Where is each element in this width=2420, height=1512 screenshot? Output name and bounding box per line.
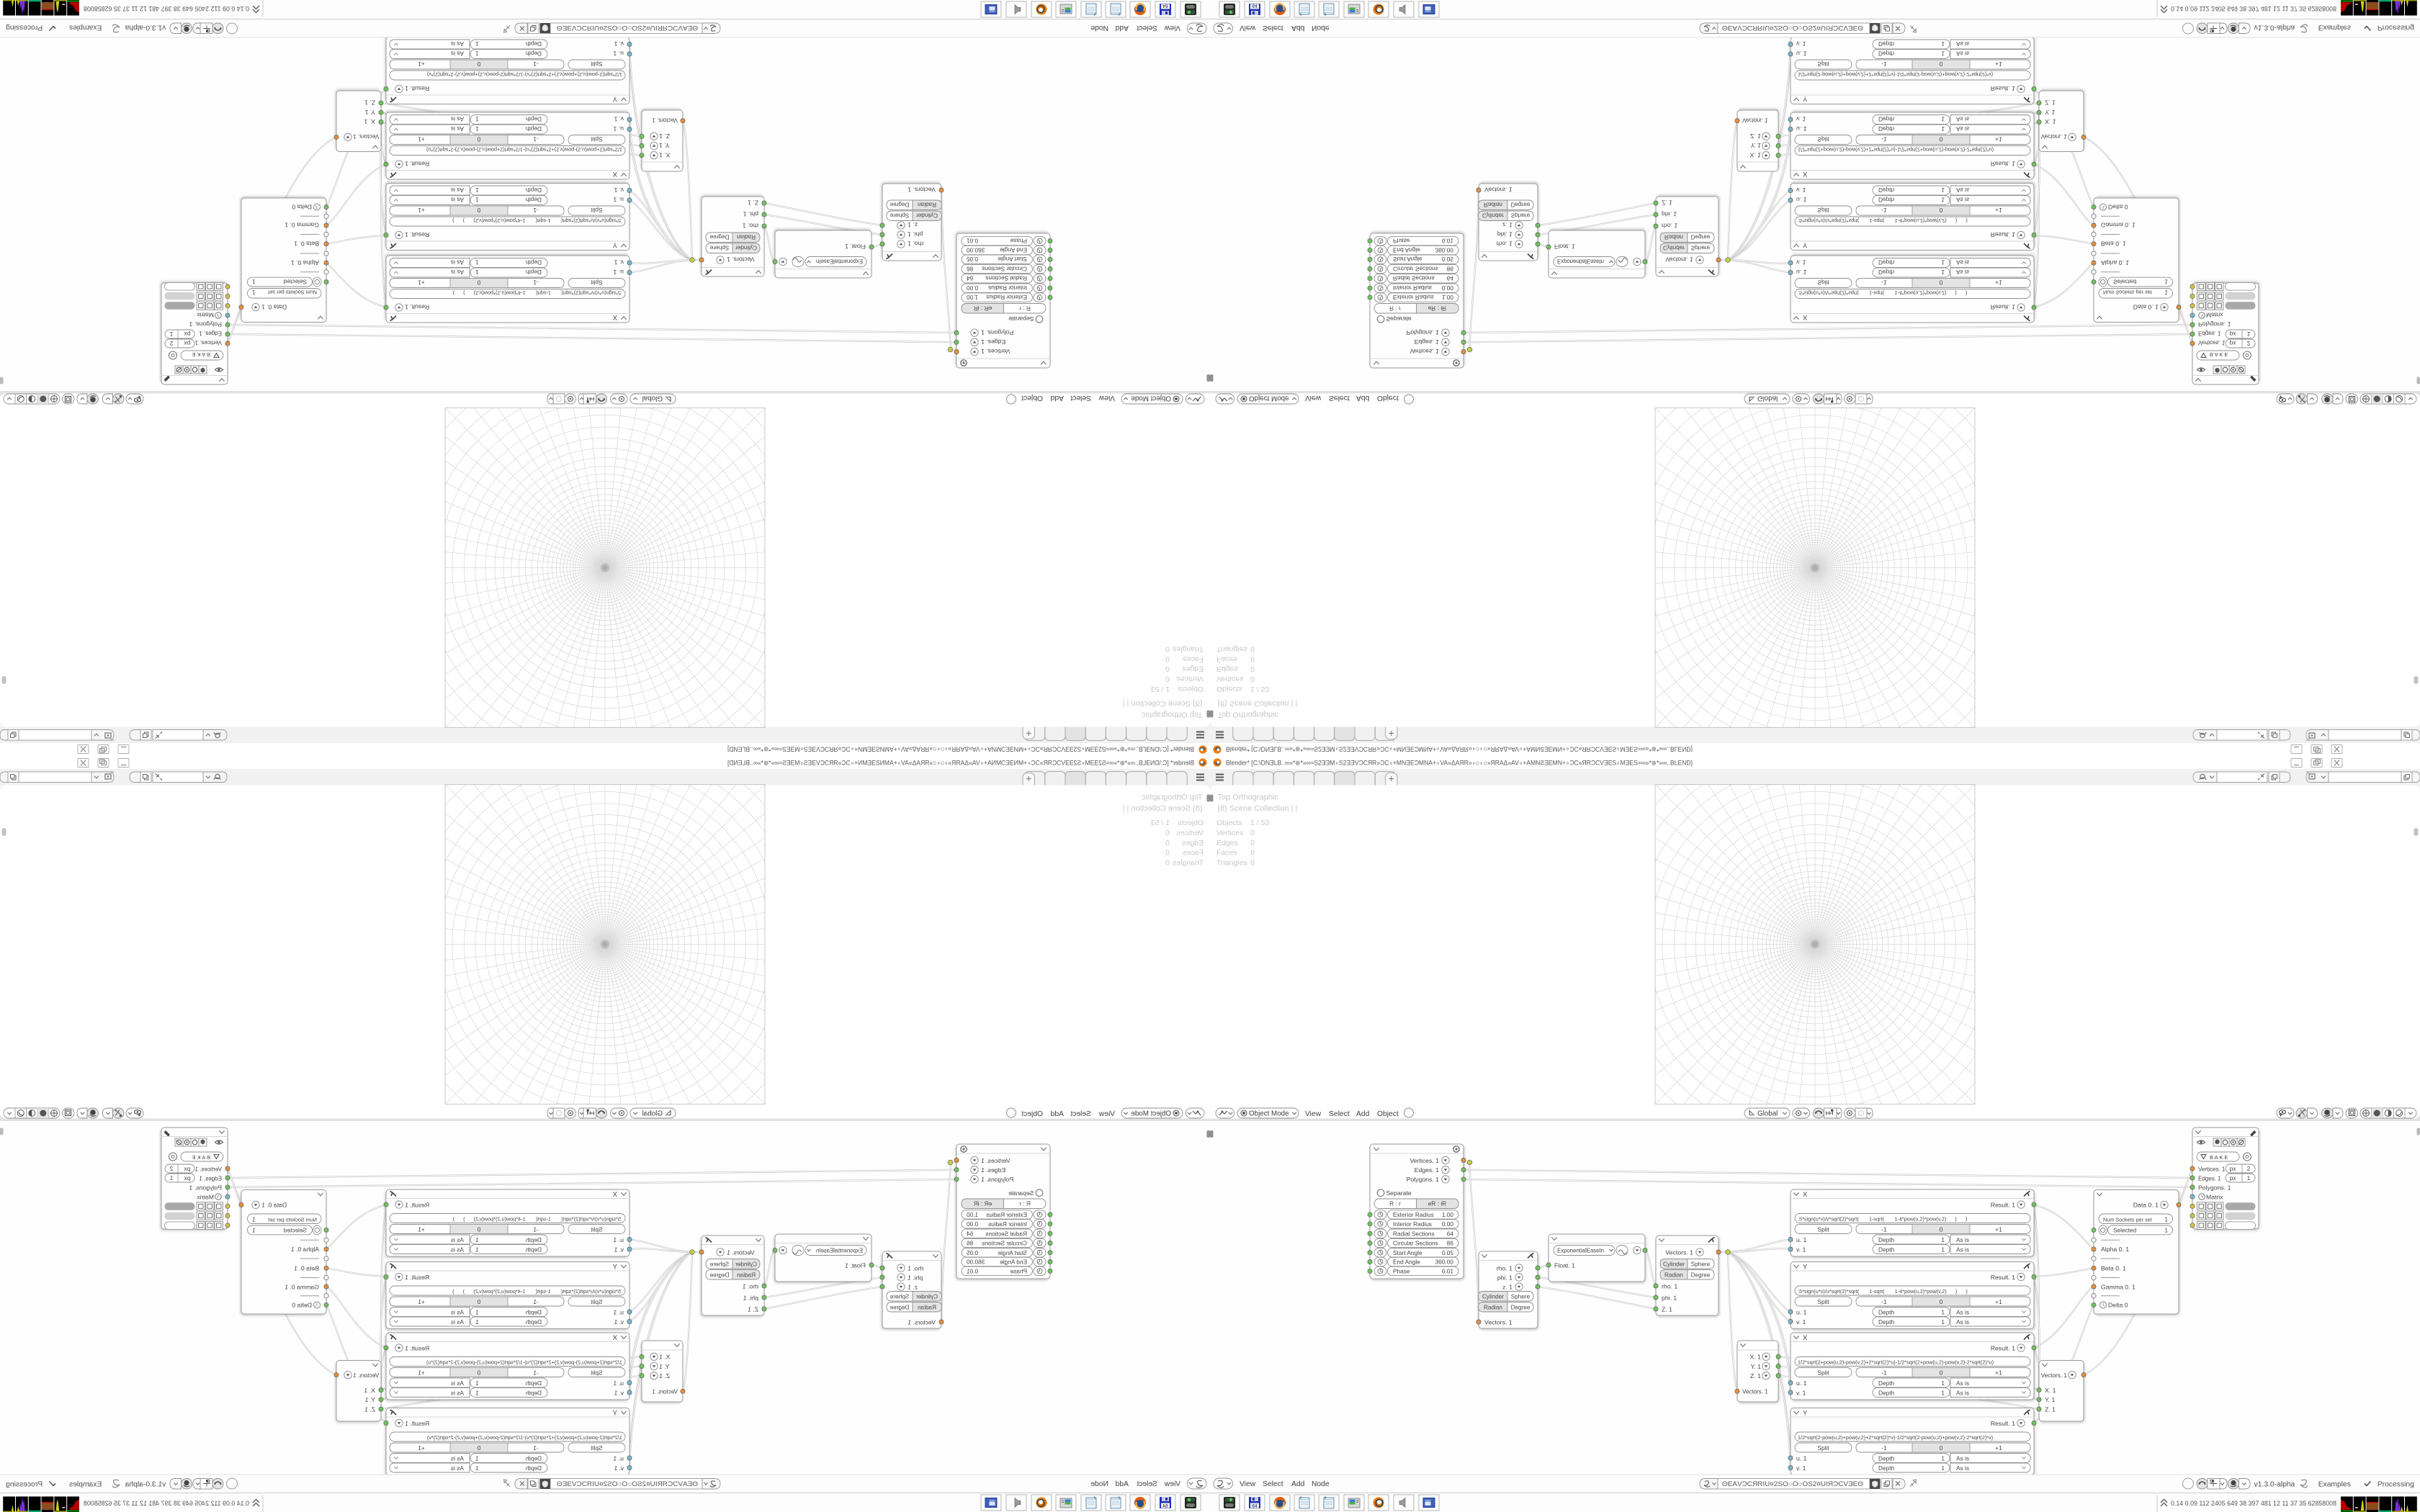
svg-text:0: 0 xyxy=(1940,1226,1943,1233)
svg-text:Z. 1: Z. 1 xyxy=(1662,1305,1672,1313)
svg-text:Split: Split xyxy=(1817,1226,1829,1233)
svg-text:64: 64 xyxy=(1447,1230,1454,1238)
svg-text:-1: -1 xyxy=(1881,1369,1887,1377)
svg-text:ExponentialEaseIn: ExponentialEaseIn xyxy=(1557,1248,1604,1254)
svg-text:Object Mode: Object Mode xyxy=(1249,1110,1289,1118)
svg-text:Radian: Radian xyxy=(1664,1272,1683,1278)
svg-text:Polygons. 1: Polygons. 1 xyxy=(2198,1184,2231,1191)
svg-text:rho. 1: rho. 1 xyxy=(1662,1282,1677,1290)
svg-text:Faces: Faces xyxy=(1216,849,1237,858)
svg-text:Result. 1: Result. 1 xyxy=(1991,1201,2015,1208)
svg-text:+1: +1 xyxy=(1995,1369,2002,1377)
svg-text:z. 1: z. 1 xyxy=(1502,1283,1512,1290)
svg-text:Z. 1: Z. 1 xyxy=(1750,1372,1761,1380)
svg-text:1: 1 xyxy=(1941,1236,1945,1243)
svg-text:v. 1: v. 1 xyxy=(1796,1318,1806,1326)
svg-text:Examples: Examples xyxy=(2318,1481,2351,1489)
svg-text:Z. 1: Z. 1 xyxy=(2045,1405,2056,1413)
svg-text:Select: Select xyxy=(1329,1110,1350,1118)
svg-text:Gamma 0. 1: Gamma 0. 1 xyxy=(2101,1283,2136,1290)
svg-text:0.01: 0.01 xyxy=(1442,1268,1454,1275)
svg-text:+1: +1 xyxy=(1995,1444,2002,1452)
svg-text:-1: -1 xyxy=(1881,1444,1887,1452)
svg-text:Phase: Phase xyxy=(1393,1268,1410,1275)
svg-text:Selected: Selected xyxy=(2113,1227,2137,1234)
svg-text:1/2*sqrt(2+pow(u,2)-pow(v,2)+2: 1/2*sqrt(2+pow(u,2)-pow(v,2)+2*sqrt(2)*u… xyxy=(1798,1359,1994,1365)
svg-text:Split: Split xyxy=(1817,1298,1829,1305)
svg-text:Separate: Separate xyxy=(1386,1189,1412,1197)
svg-text:v1.3.0-alpha: v1.3.0-alpha xyxy=(2254,1481,2295,1489)
svg-text:2: 2 xyxy=(2247,1165,2251,1172)
svg-text:-1: -1 xyxy=(1881,1226,1887,1233)
svg-text:1: 1 xyxy=(1941,1464,1945,1472)
svg-text:+1: +1 xyxy=(1995,1298,2002,1305)
svg-text:Float. 1: Float. 1 xyxy=(1554,1261,1575,1269)
svg-text:0: 0 xyxy=(1940,1444,1943,1452)
svg-text:Blender* [C:\DNƎLB..∞»*⊛*»∞≈S2: Blender* [C:\DNƎLB..∞»*⊛*»∞≈S2ƎƎM∘S2ƎƎVƆ… xyxy=(1226,760,1693,767)
svg-text:Vectors. 1: Vectors. 1 xyxy=(1484,1318,1512,1326)
svg-text:Vectors. 1: Vectors. 1 xyxy=(1665,1248,1693,1256)
svg-text:Objects: Objects xyxy=(1216,819,1242,827)
svg-text:Radial Sections: Radial Sections xyxy=(1393,1230,1435,1238)
svg-text:Split: Split xyxy=(1817,1444,1829,1452)
svg-text:Global: Global xyxy=(1757,1110,1778,1118)
svg-text:Depth: Depth xyxy=(1878,1454,1895,1462)
svg-text:Interior Radius: Interior Radius xyxy=(1393,1220,1432,1228)
svg-text:u. 1: u. 1 xyxy=(1796,1308,1807,1315)
svg-text:1: 1 xyxy=(1941,1389,1945,1396)
svg-text:As is: As is xyxy=(1956,1389,1969,1396)
svg-text:X. 1: X. 1 xyxy=(1750,1354,1762,1361)
svg-text:Y: Y xyxy=(1803,1409,1808,1417)
svg-text:360.00: 360.00 xyxy=(1435,1259,1454,1266)
svg-text:As is: As is xyxy=(1956,1236,1969,1243)
svg-text:As is: As is xyxy=(1956,1380,1969,1387)
svg-text:Depth: Depth xyxy=(1878,1308,1895,1315)
svg-text:px: px xyxy=(2230,1174,2237,1182)
svg-text:Y. 1: Y. 1 xyxy=(2045,1396,2056,1403)
svg-text:1: 1 xyxy=(1941,1380,1945,1387)
svg-text:1.00: 1.00 xyxy=(1442,1211,1454,1218)
svg-text:Matrix: Matrix xyxy=(2206,1193,2223,1200)
svg-text:0: 0 xyxy=(1250,829,1255,837)
svg-text:Result. 1: Result. 1 xyxy=(1991,1420,2015,1427)
svg-text:Delta 0: Delta 0 xyxy=(2108,1302,2128,1309)
svg-text:Data 0. 1: Data 0. 1 xyxy=(2133,1202,2159,1209)
svg-text:X: X xyxy=(1803,1191,1808,1199)
svg-text:Depth: Depth xyxy=(1878,1389,1895,1396)
svg-text:Vectors. 1: Vectors. 1 xyxy=(1742,1389,1768,1395)
svg-text:Split: Split xyxy=(1817,1369,1829,1377)
svg-text:1: 1 xyxy=(2164,1215,2168,1223)
svg-text:eR : iR: eR : iR xyxy=(1428,1200,1446,1207)
svg-text:1: 1 xyxy=(2164,1227,2168,1234)
svg-text:X: X xyxy=(1803,1334,1808,1342)
svg-text:0.05: 0.05 xyxy=(1442,1249,1454,1256)
svg-text:As is: As is xyxy=(1956,1318,1969,1326)
svg-text:As is: As is xyxy=(1956,1464,1969,1472)
svg-text:phi. 1: phi. 1 xyxy=(1497,1274,1512,1281)
svg-text:Y: Y xyxy=(1803,1263,1808,1271)
svg-text:0: 0 xyxy=(1940,1369,1943,1377)
svg-text:Select: Select xyxy=(1263,1480,1283,1488)
svg-text:phi. 1: phi. 1 xyxy=(1662,1294,1677,1301)
svg-text:Radian: Radian xyxy=(1484,1304,1502,1310)
svg-text:v. 1: v. 1 xyxy=(1796,1389,1806,1396)
svg-text:Edges. 1: Edges. 1 xyxy=(1415,1166,1439,1174)
svg-text:Vectors. 1: Vectors. 1 xyxy=(2041,1372,2068,1379)
svg-text:As is: As is xyxy=(1956,1454,1969,1462)
svg-text:0: 0 xyxy=(1250,839,1255,847)
svg-text:Result. 1: Result. 1 xyxy=(1991,1344,2015,1351)
svg-text:Object: Object xyxy=(1377,1110,1399,1118)
svg-text:Exterior Radius: Exterior Radius xyxy=(1393,1211,1434,1218)
svg-text:Depth: Depth xyxy=(1878,1236,1895,1243)
svg-text:Sphere: Sphere xyxy=(1511,1293,1531,1300)
svg-text:u. 1: u. 1 xyxy=(1796,1454,1807,1462)
svg-text:u. 1: u. 1 xyxy=(1796,1236,1807,1243)
svg-text:+1: +1 xyxy=(1995,1226,2002,1233)
svg-text:Vertices. 1: Vertices. 1 xyxy=(1410,1157,1439,1164)
svg-text:Y. 1: Y. 1 xyxy=(1751,1363,1762,1370)
svg-text:(8) Scene Collection | |: (8) Scene Collection | | xyxy=(1218,804,1298,813)
svg-text:Edges. 1: Edges. 1 xyxy=(2198,1175,2221,1182)
svg-text:0.14 0.09 112 2405 649 38: 0.14 0.09 112 2405 649 38 397 481 12 11 … xyxy=(2171,1500,2336,1507)
svg-text:Start Angle: Start Angle xyxy=(1393,1249,1422,1256)
svg-text:.5*sign(u*v)/v*sqrt(2)*sqrt(: .5*sign(u*v)/v*sqrt(2)*sqrt( 1-sqrt( 1-4… xyxy=(1798,1215,1967,1222)
svg-text:As is: As is xyxy=(1956,1308,1969,1315)
svg-text:X. 1: X. 1 xyxy=(2045,1387,2056,1394)
svg-text:View: View xyxy=(1240,1480,1256,1488)
svg-text:Degree: Degree xyxy=(1511,1304,1531,1310)
svg-text:v. 1: v. 1 xyxy=(1796,1464,1806,1472)
svg-text:View: View xyxy=(1305,1110,1322,1118)
svg-text:1: 1 xyxy=(2247,1174,2251,1182)
svg-text:Beta 0. 1: Beta 0. 1 xyxy=(2101,1265,2126,1272)
svg-text:Alpha 0. 1: Alpha 0. 1 xyxy=(2101,1246,2129,1253)
svg-text:px: px xyxy=(2230,1165,2237,1172)
svg-text:Cylinder: Cylinder xyxy=(1482,1293,1504,1300)
svg-text:Edges: Edges xyxy=(1216,839,1238,847)
svg-text:64: 64 xyxy=(1252,1503,1258,1508)
svg-text:0: 0 xyxy=(1940,1298,1943,1305)
svg-text:Depth: Depth xyxy=(1878,1380,1895,1387)
svg-text:Triangles: Triangles xyxy=(1216,859,1247,868)
svg-text:rho. 1: rho. 1 xyxy=(1497,1264,1512,1272)
svg-text:1: 1 xyxy=(1941,1308,1945,1315)
svg-text:Sphere: Sphere xyxy=(1691,1261,1711,1267)
svg-text:Vertices. 1: Vertices. 1 xyxy=(2198,1166,2226,1172)
svg-text:As is: As is xyxy=(1956,1246,1969,1253)
svg-text:Degree: Degree xyxy=(1691,1272,1711,1278)
svg-text:Add: Add xyxy=(1291,1480,1305,1488)
svg-text:u. 1: u. 1 xyxy=(1796,1380,1807,1387)
svg-text:Vertices: Vertices xyxy=(1216,829,1243,837)
svg-text:R : r: R : r xyxy=(1389,1200,1401,1207)
svg-text:0.00: 0.00 xyxy=(1442,1220,1454,1228)
svg-text:Depth: Depth xyxy=(1878,1464,1895,1472)
svg-text:Polygons. 1: Polygons. 1 xyxy=(1407,1176,1440,1183)
svg-text:Add: Add xyxy=(1356,1110,1370,1118)
svg-text:0: 0 xyxy=(1250,849,1255,858)
svg-text:B A K E: B A K E xyxy=(2210,1154,2228,1161)
svg-text:Processing: Processing xyxy=(2378,1481,2414,1489)
svg-text:0: 0 xyxy=(1250,859,1255,868)
svg-text:Depth: Depth xyxy=(1878,1318,1895,1326)
svg-text:Result. 1: Result. 1 xyxy=(1991,1274,2015,1281)
svg-text:Depth: Depth xyxy=(1878,1246,1895,1253)
svg-text:86: 86 xyxy=(1447,1240,1454,1247)
svg-text:1: 1 xyxy=(1941,1454,1945,1462)
svg-text:Top Orthographic: Top Orthographic xyxy=(1218,793,1279,802)
svg-text:1: 1 xyxy=(1941,1246,1945,1253)
svg-text:ΘΕΑVƆCЯRIU¤2SO○O○OS2¤UIЯƆCVƎΕΘ: ΘΕΑVƆCЯRIU¤2SO○O○OS2¤UIЯƆCVƎΕΘ xyxy=(1722,1480,1863,1488)
svg-text:v. 1: v. 1 xyxy=(1796,1246,1806,1253)
svg-text:Node: Node xyxy=(1312,1480,1330,1488)
svg-text:-1: -1 xyxy=(1881,1298,1887,1305)
svg-text:Num Sockets per set: Num Sockets per set xyxy=(2103,1216,2152,1223)
svg-text:1 / 53: 1 / 53 xyxy=(1250,819,1269,827)
svg-text:.5*sign(u*v)/u*sqrt(2)*sqrt(: .5*sign(u*v)/u*sqrt(2)*sqrt( 1-sqrt( 1-4… xyxy=(1798,1288,1968,1295)
svg-text:1: 1 xyxy=(1941,1318,1945,1326)
svg-text:1/2*sqrt(2-pow(u,2)+pow(v,2)+2: 1/2*sqrt(2-pow(u,2)+pow(v,2)+2*sqrt(2)*v… xyxy=(1798,1434,1993,1441)
svg-text:Cylinder: Cylinder xyxy=(1663,1261,1685,1267)
svg-text:Circular Sections: Circular Sections xyxy=(1393,1240,1438,1247)
svg-text:End Angle: End Angle xyxy=(1393,1259,1420,1266)
